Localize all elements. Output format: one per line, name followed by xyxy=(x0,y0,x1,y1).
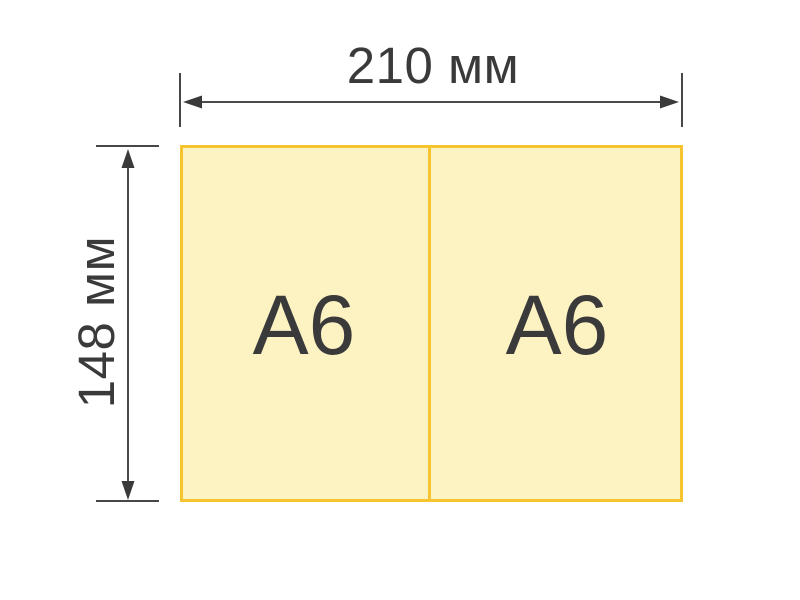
width-extension-line-right xyxy=(681,73,683,127)
horizontal-double-arrow-icon xyxy=(181,90,681,114)
width-dimension-label: 210 мм xyxy=(333,40,533,92)
figure-canvas: 210 мм 148 мм A6 A6 xyxy=(0,0,800,600)
arrowhead-right-icon xyxy=(660,96,679,109)
sheet-cell-right-label: A6 xyxy=(431,283,683,367)
arrowhead-up-icon xyxy=(122,149,135,168)
sheet-cell-left-label: A6 xyxy=(180,283,428,367)
vertical-double-arrow-icon xyxy=(116,147,140,502)
arrowhead-left-icon xyxy=(183,96,202,109)
arrowhead-down-icon xyxy=(122,481,135,500)
